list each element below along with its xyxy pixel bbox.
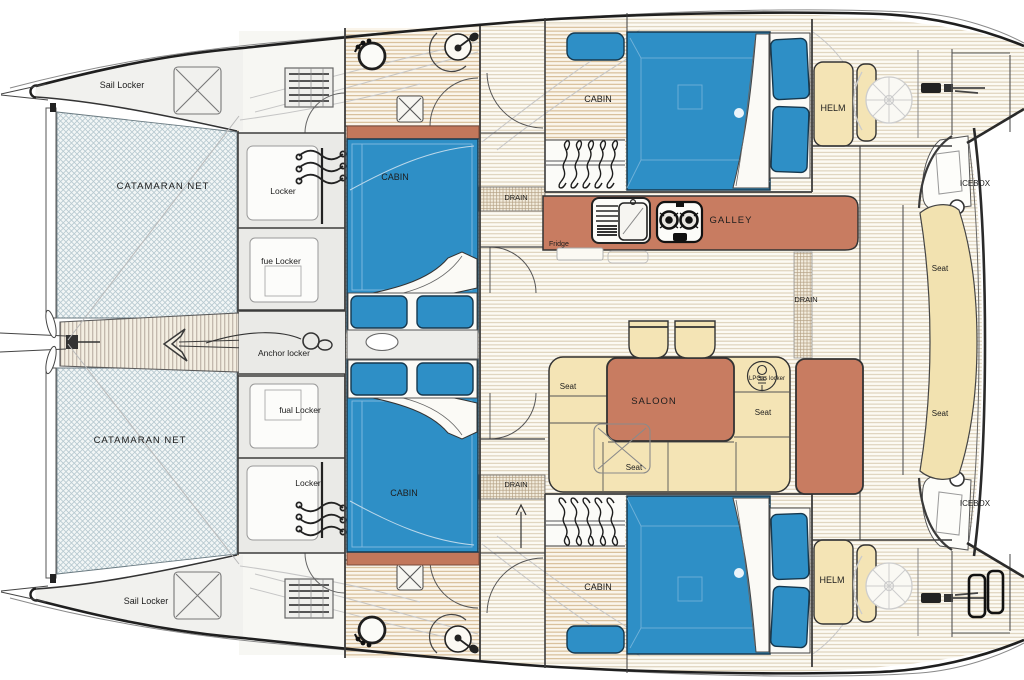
svg-text:HELM: HELM <box>820 103 845 113</box>
svg-text:Seat: Seat <box>626 463 643 472</box>
svg-text:Fridge: Fridge <box>549 241 569 248</box>
svg-text:CABIN: CABIN <box>584 94 612 104</box>
svg-text:DRAIN: DRAIN <box>794 295 817 304</box>
svg-text:CABIN: CABIN <box>584 582 612 592</box>
svg-text:Sail Locker: Sail Locker <box>100 80 145 90</box>
svg-text:SALOON: SALOON <box>631 396 677 407</box>
svg-text:Locker: Locker <box>295 478 321 488</box>
svg-text:DRAIN: DRAIN <box>504 480 527 489</box>
svg-text:fual Locker: fual Locker <box>279 405 321 415</box>
svg-text:Seat: Seat <box>932 264 949 273</box>
svg-text:ICEBOX: ICEBOX <box>960 499 991 508</box>
svg-text:GALLEY: GALLEY <box>710 215 753 226</box>
svg-text:CABIN: CABIN <box>381 172 409 182</box>
svg-text:Seat: Seat <box>755 408 772 417</box>
svg-text:LPGas locker: LPGas locker <box>749 376 785 382</box>
svg-text:Locker: Locker <box>270 186 296 196</box>
svg-text:Anchor locker: Anchor locker <box>258 348 310 358</box>
svg-text:HELM: HELM <box>819 575 844 585</box>
svg-text:Seat: Seat <box>560 382 577 391</box>
svg-text:Sail Locker: Sail Locker <box>124 596 169 606</box>
svg-text:fue Locker: fue Locker <box>261 256 301 266</box>
svg-text:CABIN: CABIN <box>390 488 418 498</box>
svg-text:ICEBOX: ICEBOX <box>960 179 991 188</box>
svg-text:CATAMARAN NET: CATAMARAN NET <box>117 181 210 192</box>
svg-text:CATAMARAN NET: CATAMARAN NET <box>94 435 187 446</box>
svg-text:Seat: Seat <box>932 409 949 418</box>
svg-text:DRAIN: DRAIN <box>504 193 527 202</box>
